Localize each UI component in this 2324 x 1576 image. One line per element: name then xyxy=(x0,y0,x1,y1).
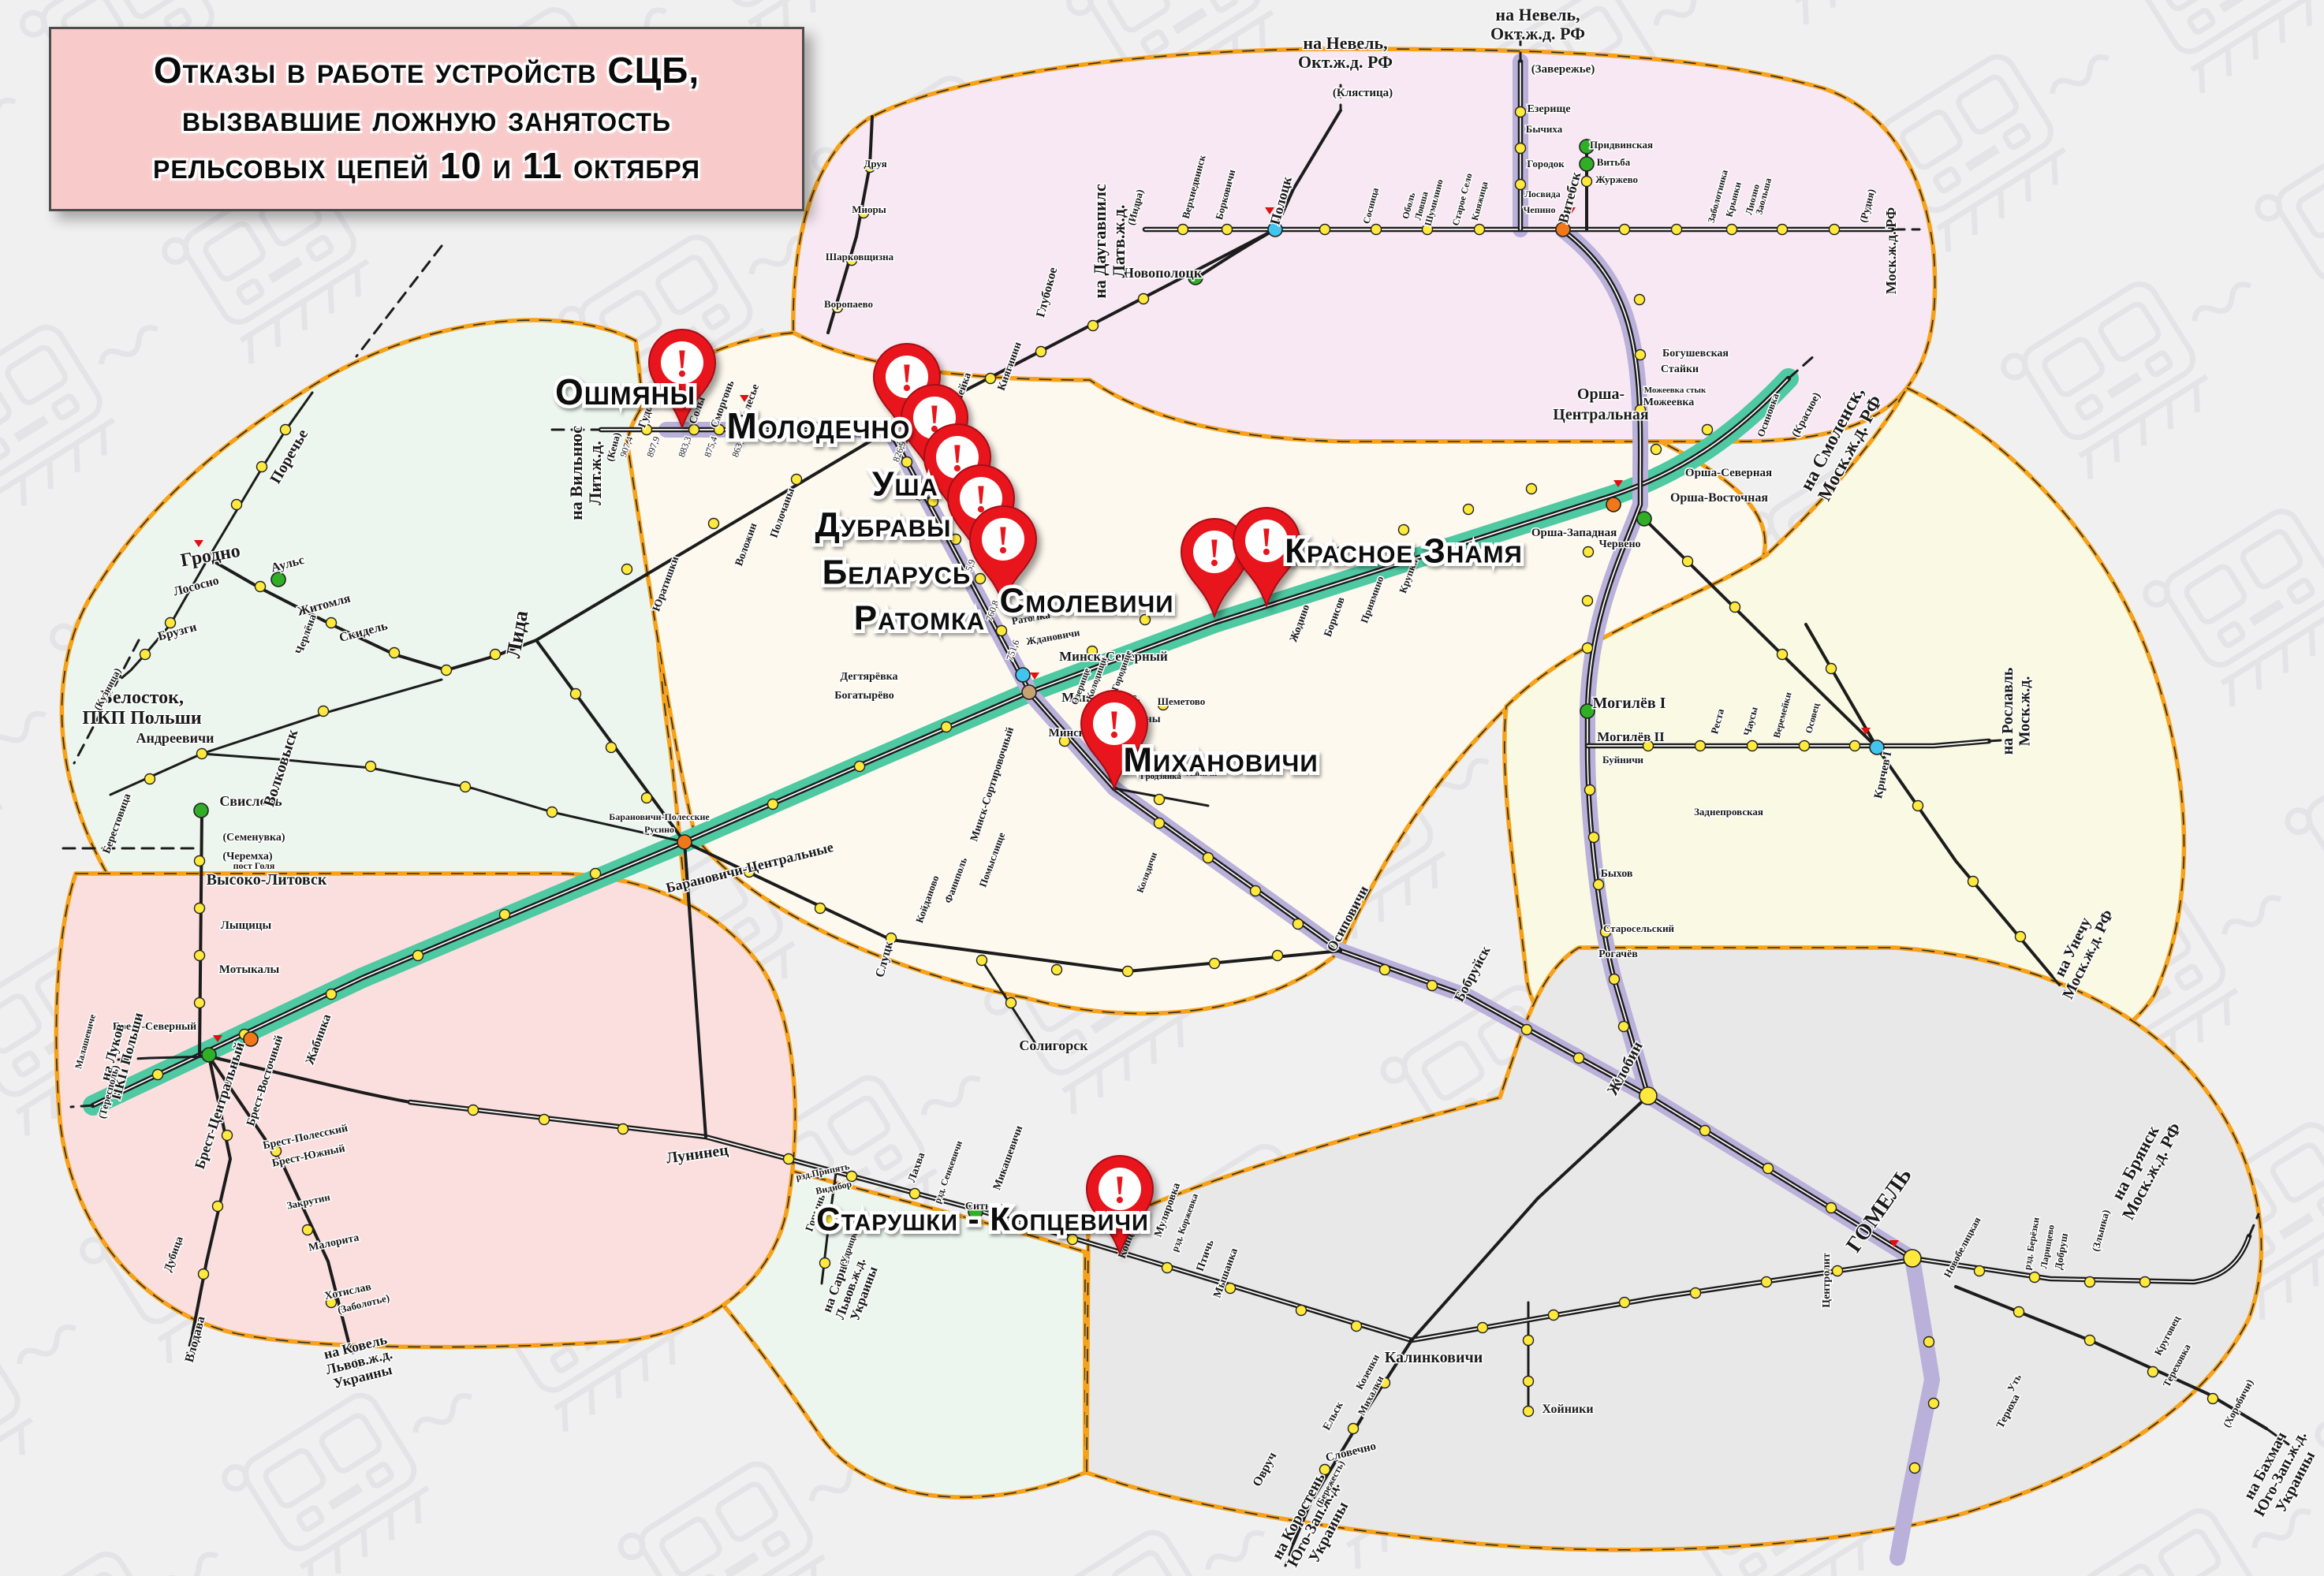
station-dot xyxy=(1006,998,1017,1008)
station-dot xyxy=(2140,1277,2151,1287)
station-dot xyxy=(195,903,205,914)
station-dot xyxy=(1826,664,1837,674)
station-dot xyxy=(1635,295,1645,305)
station-dot xyxy=(1584,547,1594,557)
station-dot xyxy=(709,519,719,529)
station-dot xyxy=(1052,965,1062,975)
map-station-label: Шеметово xyxy=(1158,695,1206,707)
station-dot xyxy=(153,1070,163,1080)
station-dot xyxy=(2208,1394,2218,1404)
station-dot xyxy=(622,564,632,575)
map-station-label: Червено xyxy=(1598,538,1640,550)
map-station-label: Журжево xyxy=(1595,173,1638,185)
failure-station-label: Уша xyxy=(872,465,938,504)
map-station-label: Мотыкалы xyxy=(219,963,280,976)
station-dot xyxy=(1651,445,1662,455)
failure-station-label: Михановичи xyxy=(1123,741,1318,780)
station-dot xyxy=(815,903,826,914)
station-dot xyxy=(1683,557,1693,567)
screenshot-stage: ГродноПоречьеЛососноБрузгиАульсЖитомляСк… xyxy=(0,0,2324,1576)
station-dot xyxy=(1730,602,1740,613)
station-dot xyxy=(1583,643,1593,654)
map-station-label: Богатырёво xyxy=(834,690,894,702)
map-station-label: Лосвида xyxy=(1524,188,1560,199)
station-dot xyxy=(642,793,652,803)
failure-station-label: Беларусь xyxy=(823,553,972,592)
map-station-label: Андреевичи xyxy=(136,730,214,746)
station-dot xyxy=(1574,1053,1584,1064)
map-exit-label: (Черемха) xyxy=(222,851,273,863)
map-station-label: Центролит xyxy=(1821,1253,1833,1308)
failure-station-label: Дубравы xyxy=(815,506,952,545)
station-dot xyxy=(1913,801,1923,811)
exclamation-icon: ! xyxy=(1108,702,1121,746)
station-dot xyxy=(977,956,987,966)
map-station-label: Солигорск xyxy=(1019,1038,1088,1053)
station-dot xyxy=(547,807,558,818)
station-node-dot xyxy=(1016,668,1030,682)
station-dot xyxy=(1924,1337,1934,1347)
map-station-label: Заднепровская xyxy=(1694,806,1763,818)
station-dot xyxy=(591,869,601,879)
station-dot xyxy=(1691,1288,1701,1298)
station-dot xyxy=(1522,1025,1532,1035)
map-station-label: Езерище xyxy=(1527,103,1570,115)
station-dot xyxy=(390,648,400,658)
station-node-dot xyxy=(1904,1250,1921,1267)
station-node-dot xyxy=(1580,157,1594,171)
station-dot xyxy=(1293,919,1304,930)
map-station-label: Друя xyxy=(864,158,886,170)
station-dot xyxy=(461,782,471,792)
exclamation-icon: ! xyxy=(997,517,1010,561)
station-dot xyxy=(1273,951,1283,961)
station-dot xyxy=(1748,741,1758,751)
map-station-label: Могилёв II xyxy=(1597,729,1665,744)
map-station-label: Минск-Северный xyxy=(1059,649,1168,664)
station-node-dot xyxy=(677,835,692,849)
map-station-label: Высоко-Литовск xyxy=(207,871,327,889)
station-dot xyxy=(1464,505,1474,515)
station-dot xyxy=(1583,596,1593,606)
failure-station-label: Красное Знамя xyxy=(1285,532,1523,571)
station-dot xyxy=(1582,177,1592,187)
title-line-1: Отказы в работе устройств СЦБ, xyxy=(62,47,791,95)
rail-line xyxy=(150,1056,209,1058)
station-dot xyxy=(1636,350,1646,360)
station-dot xyxy=(1826,1203,1837,1213)
map-exit-label: (Завережье) xyxy=(1531,63,1595,76)
map-station-label: Богушевская xyxy=(1662,348,1729,360)
station-dot xyxy=(1036,347,1046,357)
map-station-label: Лыщицы xyxy=(221,919,272,932)
station-dot xyxy=(1203,853,1214,863)
station-dot xyxy=(1589,833,1599,843)
map-exit-label: (Клястица) xyxy=(1333,87,1393,99)
title-box: Отказы в работе устройств СЦБ, вызвавшие… xyxy=(49,27,804,211)
station-dot xyxy=(910,1189,920,1199)
station-dot xyxy=(618,1124,629,1134)
station-dot xyxy=(997,626,1007,636)
station-dot xyxy=(257,462,267,472)
station-dot xyxy=(1585,785,1595,795)
station-dot xyxy=(942,722,952,732)
station-dot xyxy=(1527,484,1537,494)
station-dot xyxy=(140,650,151,660)
station-dot xyxy=(199,1269,209,1280)
station-dot xyxy=(1478,1323,1488,1333)
station-dot xyxy=(1088,321,1099,331)
map-station-label: Придвинская xyxy=(1590,139,1653,151)
station-dot xyxy=(1763,1164,1774,1174)
station-dot xyxy=(256,582,266,592)
station-dot xyxy=(2016,932,2026,942)
station-dot xyxy=(1155,795,1165,805)
station-dot xyxy=(213,1202,223,1212)
station-dot xyxy=(1968,877,1979,887)
map-station-label: Чепино xyxy=(1524,204,1556,215)
station-dot xyxy=(571,689,581,699)
station-dot xyxy=(975,574,986,584)
station-dot xyxy=(195,998,205,1008)
station-dot xyxy=(366,762,376,772)
station-dot xyxy=(1700,1126,1710,1136)
station-dot xyxy=(197,749,207,759)
station-dot xyxy=(1695,741,1706,751)
station-dot xyxy=(1139,294,1149,304)
map-station-label: Рогачёв xyxy=(1598,948,1638,960)
failure-station-label: Ошмяны xyxy=(555,371,696,412)
station-dot xyxy=(1320,1465,1330,1475)
failure-station-label: Смолевичи xyxy=(999,582,1173,620)
station-dot xyxy=(1320,225,1330,235)
station-node-dot xyxy=(194,803,208,818)
station-dot xyxy=(1594,880,1604,890)
map-station-label: Орша-Восточная xyxy=(1670,491,1768,505)
map-station-label: Бычиха xyxy=(1526,123,1563,135)
map-station-label: Стайки xyxy=(1661,363,1699,375)
station-node-dot xyxy=(202,1048,216,1062)
station-dot xyxy=(303,1225,313,1235)
station-dot xyxy=(1524,1336,1534,1346)
map-station-label: Быхов xyxy=(1601,868,1633,880)
station-dot xyxy=(1162,1263,1173,1273)
map-station-label: Новополоцк xyxy=(1123,265,1203,281)
station-dot xyxy=(2030,1272,2040,1283)
map-exit-label: на Невель,Окт.ж.д. РФ xyxy=(1298,33,1393,72)
station-dot xyxy=(500,910,510,920)
station-dot xyxy=(2085,1336,2095,1346)
map-station-label: Воропаево xyxy=(824,298,873,310)
station-dot xyxy=(1833,1266,1843,1276)
station-dot xyxy=(1703,425,1713,435)
station-dot xyxy=(442,665,452,676)
station-dot xyxy=(1727,225,1737,235)
title-line-2: вызвавшие ложную занятость xyxy=(62,95,791,143)
station-dot xyxy=(1296,1306,1307,1316)
map-station-label: Орша- xyxy=(1577,386,1625,403)
station-dot xyxy=(1251,886,1261,896)
station-dot xyxy=(232,500,242,510)
map-station-label: Можеевка xyxy=(1643,397,1695,408)
station-dot xyxy=(1549,1310,1559,1321)
map-station-label: Калинковичи xyxy=(1385,1349,1483,1366)
station-node-dot xyxy=(1637,512,1651,526)
railway-map: ГродноПоречьеЛососноБрузгиАульсЖитомляСк… xyxy=(0,0,2324,1576)
station-dot xyxy=(1672,225,1682,235)
station-dot xyxy=(1778,225,1788,235)
exclamation-icon: ! xyxy=(901,355,914,399)
map-station-label: Городок xyxy=(1527,158,1565,170)
map-exit-label: Моск.ж.д. РФ xyxy=(1883,207,1899,294)
station-dot xyxy=(326,989,337,1000)
station-dot xyxy=(1619,1022,1629,1032)
station-node-dot xyxy=(244,1032,258,1046)
station-dot xyxy=(195,856,205,866)
station-dot xyxy=(1516,143,1526,154)
failure-station-label: Старушки - Копцевичи xyxy=(816,1201,1149,1238)
station-dot xyxy=(1516,107,1526,117)
station-dot xyxy=(1524,1377,1534,1387)
exclamation-icon: ! xyxy=(1260,519,1274,563)
station-dot xyxy=(1610,974,1620,985)
station-dot xyxy=(1352,1321,1362,1332)
station-dot xyxy=(1380,965,1390,975)
map-station-label: Барановичи-Полесские xyxy=(609,811,710,822)
station-dot xyxy=(222,1131,233,1141)
station-dot xyxy=(1427,981,1438,991)
station-dot xyxy=(491,650,501,660)
station-dot xyxy=(1222,225,1233,235)
station-dot xyxy=(2085,1277,2095,1287)
station-dot xyxy=(1371,225,1382,235)
map-station-label: Орша-Северная xyxy=(1685,467,1772,479)
station-dot xyxy=(1850,741,1860,751)
exclamation-icon: ! xyxy=(1208,530,1222,574)
station-node-dot xyxy=(1022,685,1036,699)
station-dot xyxy=(1778,650,1788,660)
map-station-label: Миоры xyxy=(852,203,886,215)
station-dot xyxy=(2148,1367,2158,1377)
station-node-dot xyxy=(1639,1087,1657,1105)
station-dot xyxy=(820,1258,830,1269)
station-dot xyxy=(1910,1463,1920,1474)
station-dot xyxy=(792,475,802,485)
station-dot xyxy=(1123,967,1133,977)
station-dot xyxy=(539,1115,550,1125)
map-station-label: Шарковщизна xyxy=(826,251,894,263)
station-dot xyxy=(1349,1424,1359,1434)
station-dot xyxy=(413,951,423,961)
map-station-label: Русино xyxy=(644,824,674,835)
station-dot xyxy=(986,374,996,384)
station-dot xyxy=(1524,1406,1534,1417)
station-dot xyxy=(319,706,329,717)
station-dot xyxy=(281,425,291,435)
map-exit-label: на РославльМоск.ж.д. xyxy=(1999,667,2034,754)
map-station-label: Орша-Западная xyxy=(1531,527,1617,539)
station-dot xyxy=(1155,818,1165,829)
map-station-label: Старосельский xyxy=(1603,922,1675,934)
station-node-dot xyxy=(1606,497,1621,512)
station-dot xyxy=(1800,741,1810,751)
map-station-label: Буйничи xyxy=(1602,754,1644,766)
station-dot xyxy=(1620,1298,1630,1308)
station-dot xyxy=(855,762,865,772)
station-dot xyxy=(2014,1307,2024,1317)
station-dot xyxy=(1475,225,1485,235)
station-dot xyxy=(1975,1266,1985,1276)
map-exit-label: (Семенувка) xyxy=(222,832,285,844)
station-dot xyxy=(326,618,337,628)
map-station-label: Центральная xyxy=(1553,406,1649,423)
station-dot xyxy=(145,774,155,784)
station-dot xyxy=(1178,225,1188,235)
station-dot xyxy=(606,743,617,753)
map-station-label: Дегтярёвка xyxy=(840,671,897,683)
station-dot xyxy=(195,951,205,961)
station-dot xyxy=(1762,1277,1772,1287)
map-station-label: Могилёв I xyxy=(1593,695,1666,712)
map-station-label: Хойники xyxy=(1542,1403,1593,1416)
failure-station-label: Ратомка xyxy=(854,599,986,638)
station-dot xyxy=(951,535,961,545)
station-dot xyxy=(1210,959,1220,969)
station-dot xyxy=(768,799,778,810)
map-exit-label: на Невель,Окт.ж.д. РФ xyxy=(1490,5,1585,43)
station-dot xyxy=(1620,225,1630,235)
failure-station-label: Молодечно xyxy=(727,405,911,446)
station-dot xyxy=(784,1154,794,1164)
title-line-3: рельсовых цепей 10 и 11 октября xyxy=(62,142,791,190)
station-dot xyxy=(1929,1399,1939,1409)
station-dot xyxy=(468,1105,479,1116)
map-station-label: Витьба xyxy=(1597,156,1631,168)
station-dot xyxy=(1830,225,1840,235)
map-station-label: Можеевка стык xyxy=(1644,386,1707,395)
